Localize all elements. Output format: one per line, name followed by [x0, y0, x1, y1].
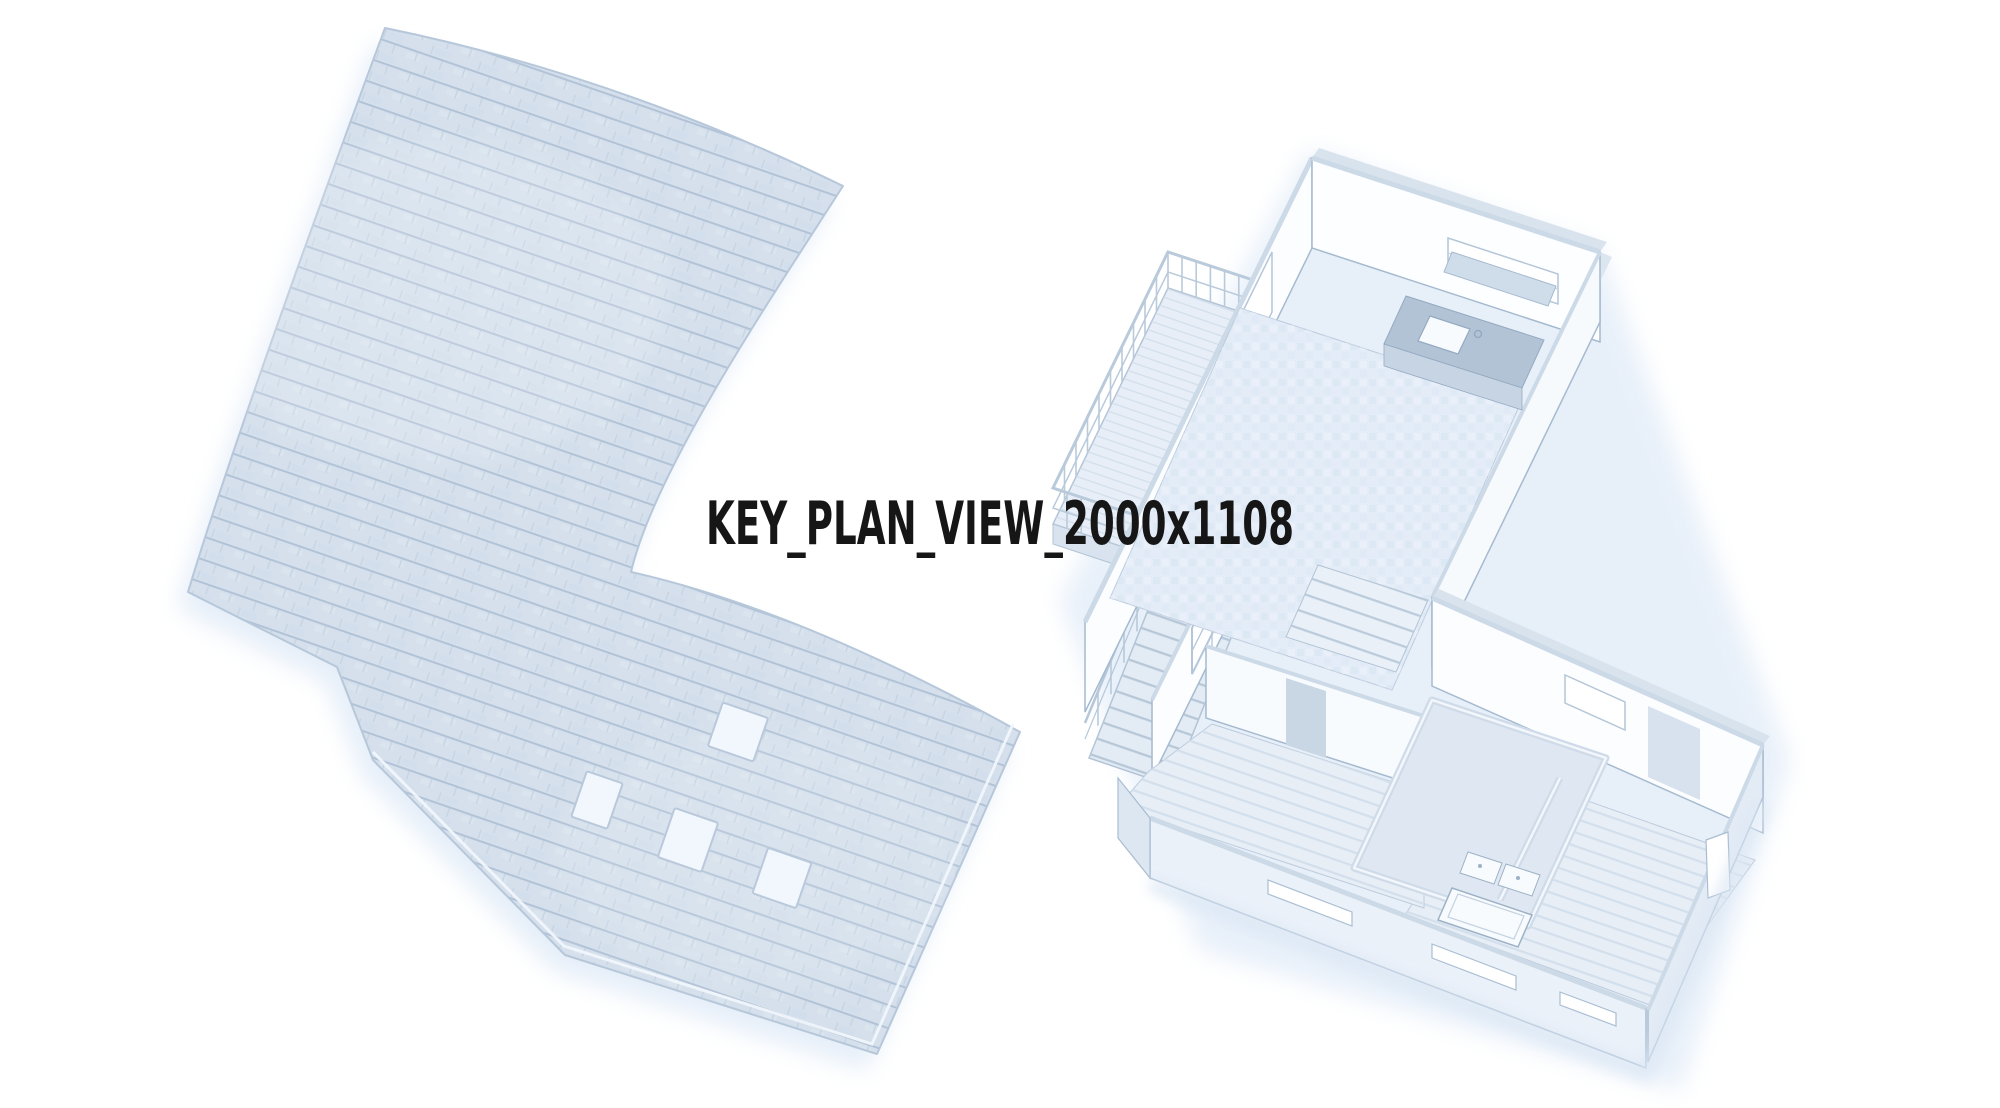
roof-sheen-2	[560, 730, 960, 990]
sink-drain-icon	[1516, 876, 1520, 880]
floor-plan	[1053, 148, 1790, 1090]
key-plan-canvas: KEY_PLAN_VIEW_2000x1108	[0, 0, 2000, 1108]
sink-drain-icon	[1478, 864, 1482, 868]
hall-doorway	[1286, 678, 1326, 758]
roof-sheen	[190, 140, 670, 460]
page-title: KEY_PLAN_VIEW_2000x1108	[706, 494, 1294, 554]
